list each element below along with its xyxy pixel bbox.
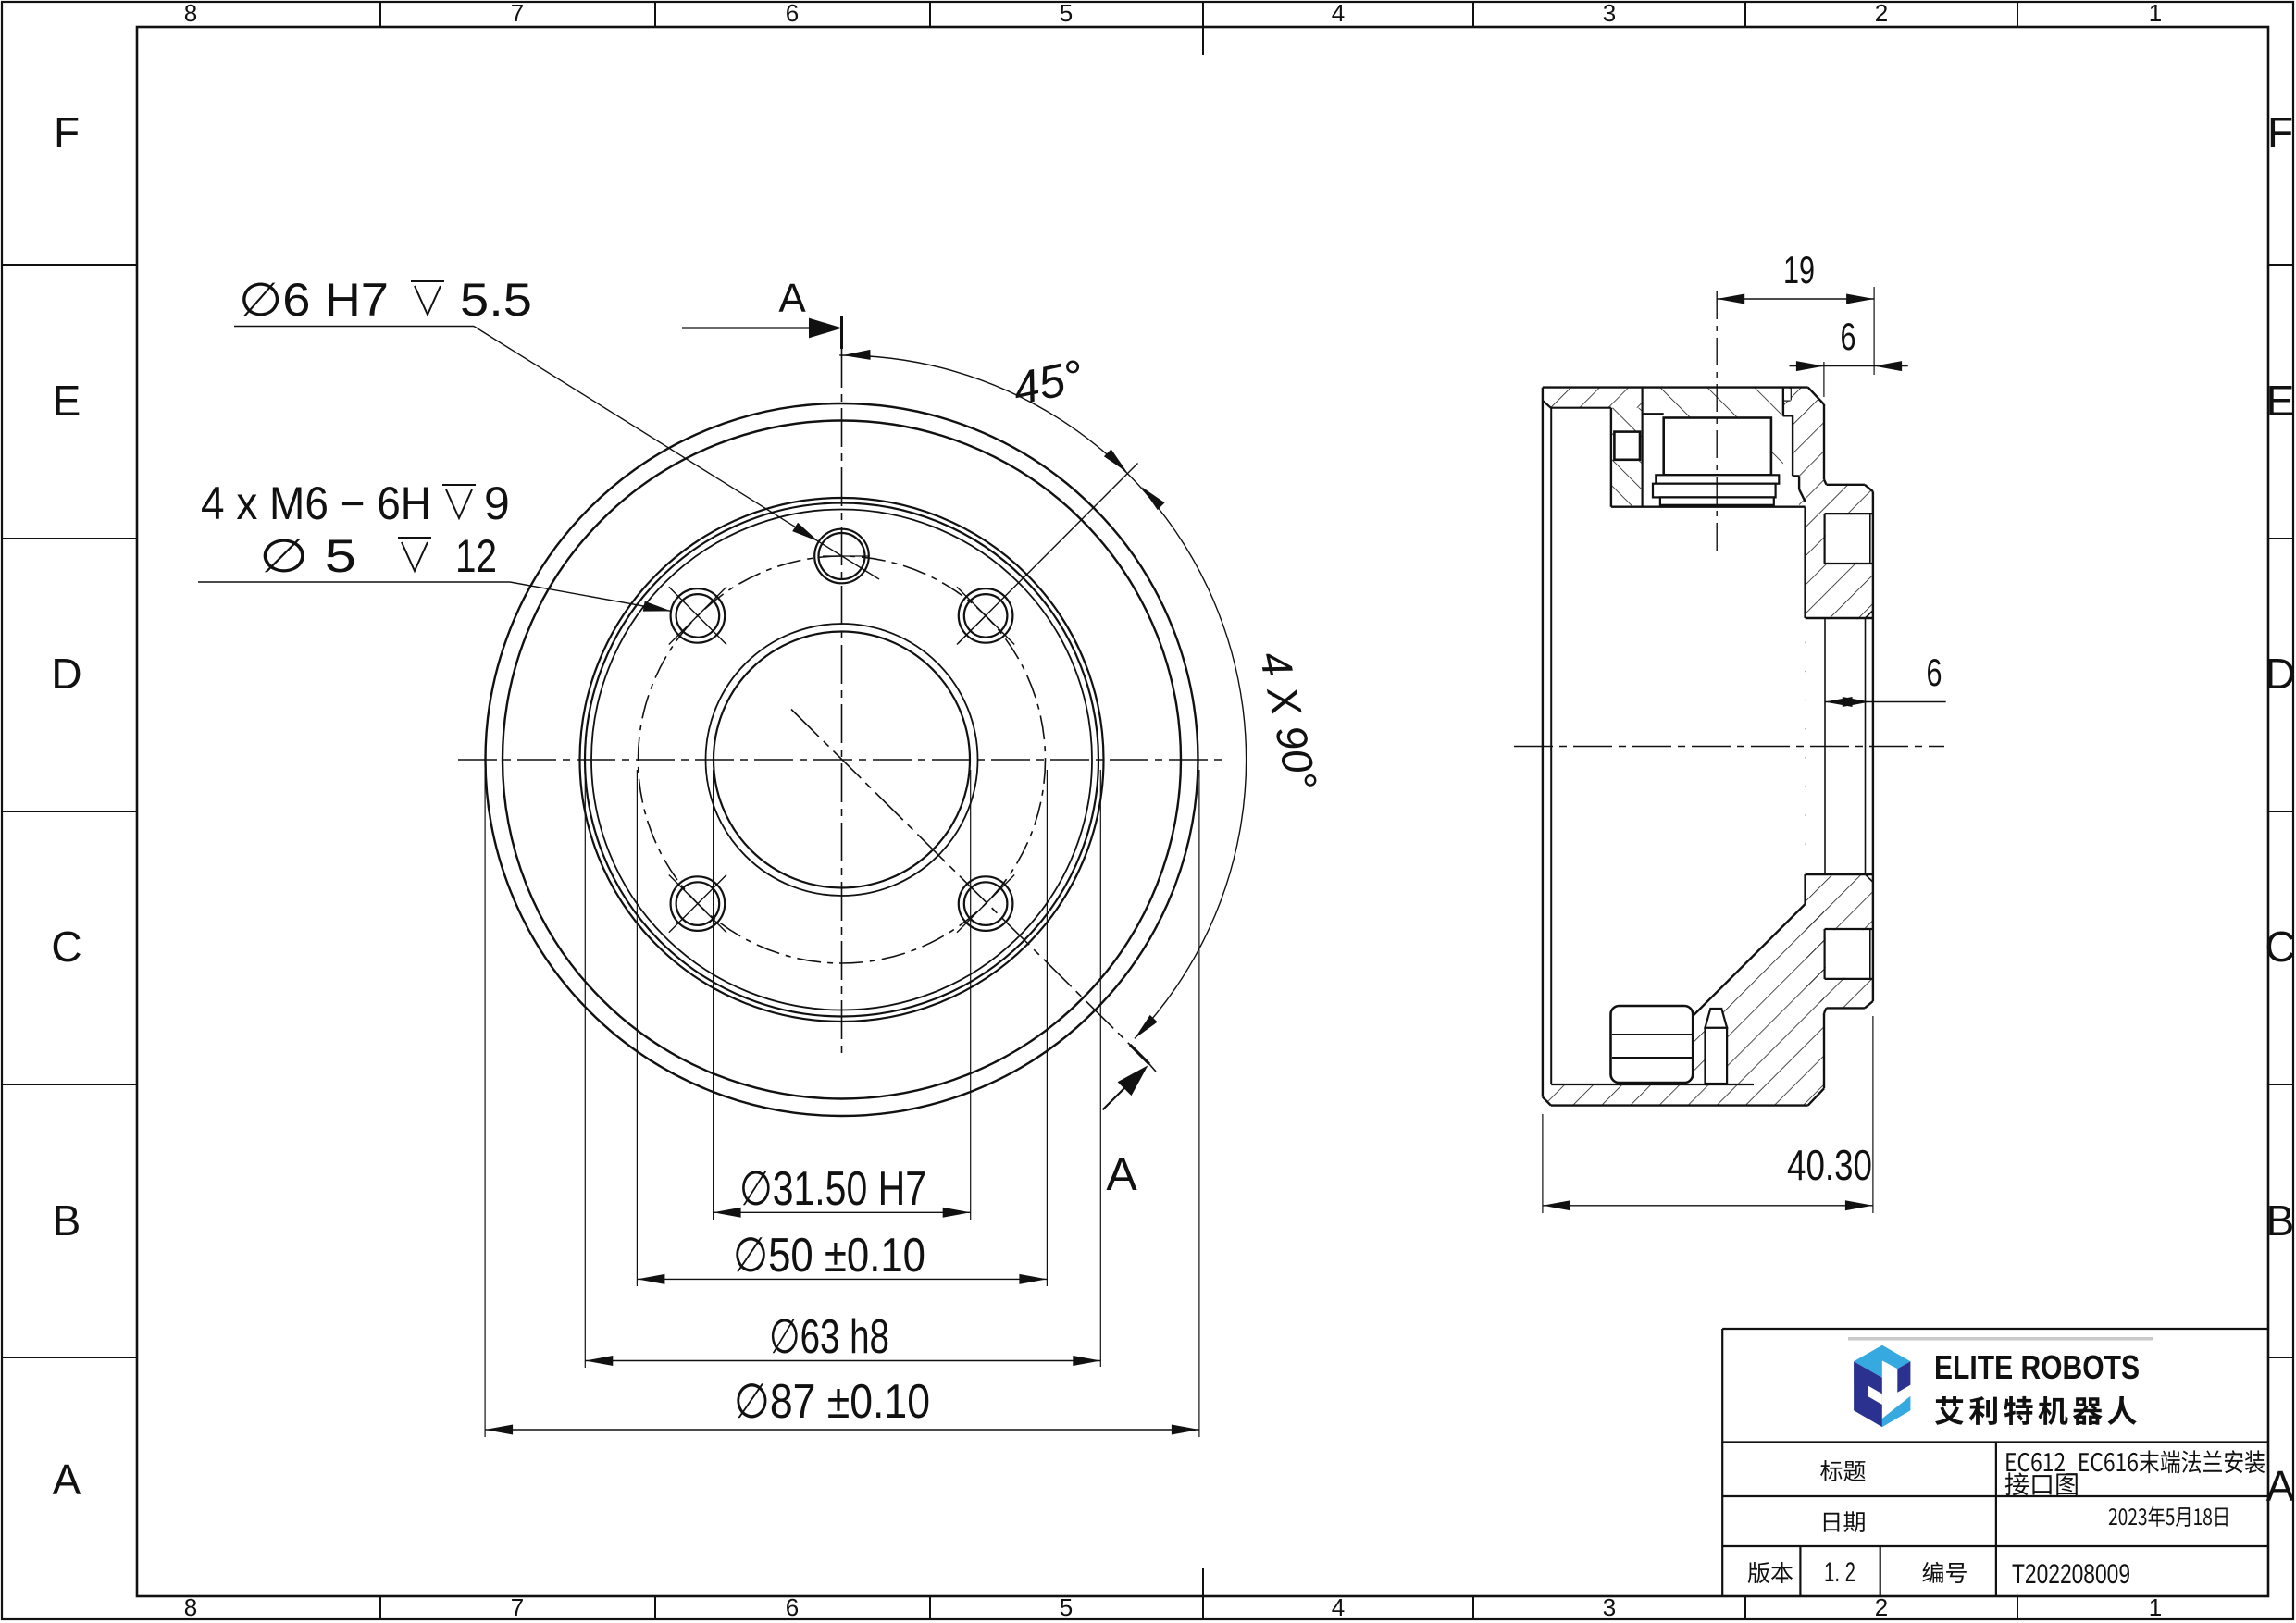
svg-text:∅63 h8: ∅63 h8 <box>769 1310 889 1364</box>
svg-text:8: 8 <box>184 1593 197 1621</box>
svg-text:7: 7 <box>511 0 524 27</box>
svg-text:A: A <box>2266 1462 2295 1510</box>
svg-text:19: 19 <box>1783 248 1815 291</box>
svg-text:F: F <box>2267 108 2293 156</box>
svg-text:ELITE ROBOTS: ELITE ROBOTS <box>1934 1348 2140 1386</box>
svg-text:7: 7 <box>511 1593 524 1621</box>
svg-text:40.30: 40.30 <box>1787 1141 1872 1189</box>
svg-text:F: F <box>54 108 80 156</box>
svg-text:6: 6 <box>1927 650 1942 694</box>
svg-text:∅ 5: ∅ 5 <box>259 530 356 582</box>
svg-text:A: A <box>1106 1148 1137 1200</box>
svg-text:1: 1 <box>2149 0 2162 27</box>
svg-text:∅31.50 H7: ∅31.50 H7 <box>739 1162 926 1216</box>
svg-text:3: 3 <box>1603 1593 1616 1621</box>
svg-text:3: 3 <box>1603 0 1616 27</box>
svg-text:1. 2: 1. 2 <box>1824 1557 1855 1588</box>
svg-text:5: 5 <box>1060 1593 1073 1621</box>
svg-text:6: 6 <box>786 0 799 27</box>
svg-text:T202208009: T202208009 <box>2012 1559 2130 1590</box>
svg-text:4 x M6 − 6H: 4 x M6 − 6H <box>201 477 431 529</box>
svg-text:4: 4 <box>1332 1593 1345 1621</box>
svg-text:B: B <box>53 1196 81 1245</box>
svg-text:A: A <box>778 276 806 321</box>
svg-text:4: 4 <box>1332 0 1345 27</box>
svg-text:2: 2 <box>1875 0 1888 27</box>
svg-text:5: 5 <box>1060 0 1073 27</box>
svg-text:A: A <box>53 1456 81 1504</box>
svg-text:8: 8 <box>184 0 197 27</box>
svg-text:1: 1 <box>2149 1593 2162 1621</box>
svg-text:C: C <box>2265 923 2295 971</box>
svg-text:6: 6 <box>786 1593 799 1621</box>
svg-text:∅50 ±0.10: ∅50 ±0.10 <box>733 1229 925 1282</box>
svg-text:C: C <box>51 923 81 971</box>
svg-text:6: 6 <box>1841 315 1856 358</box>
svg-text:B: B <box>2266 1196 2295 1245</box>
svg-text:9: 9 <box>484 477 510 529</box>
svg-text:D: D <box>2265 650 2295 698</box>
svg-text:E: E <box>2266 377 2295 425</box>
svg-text:5.5: 5.5 <box>460 274 532 326</box>
svg-text:∅6 H7: ∅6 H7 <box>239 274 389 326</box>
svg-text:2: 2 <box>1875 1593 1888 1621</box>
svg-text:E: E <box>53 377 81 425</box>
svg-text:D: D <box>51 650 81 698</box>
svg-text:∅87 ±0.10: ∅87 ±0.10 <box>734 1375 930 1429</box>
svg-text:12: 12 <box>455 530 497 582</box>
